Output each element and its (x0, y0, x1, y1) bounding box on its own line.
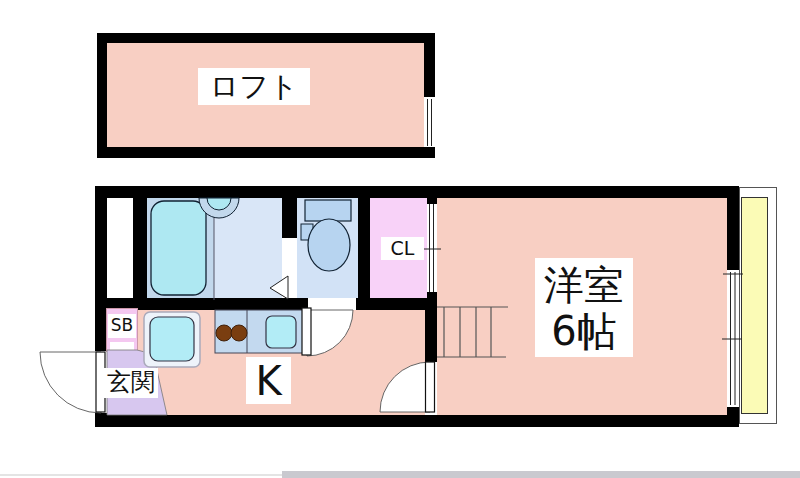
shoe-box-label: SB (108, 314, 136, 338)
interior-door-opening (425, 362, 437, 415)
western-room-label: 洋室 6帖 (535, 258, 633, 357)
room-toilet (297, 198, 358, 298)
wall-toilet-closet (358, 198, 370, 310)
wall-void-bathroom (133, 198, 147, 310)
main-wall-bottom (95, 415, 739, 427)
wall-washroom-toilet (282, 198, 297, 238)
main-window-opening (727, 270, 739, 407)
wall-closet-bottom (356, 298, 437, 310)
floor-plan: ロフト 洋室 6帖 CL K 玄関 SB (0, 0, 800, 478)
void-space (107, 198, 133, 300)
kitchen-label: K (246, 357, 291, 404)
wall-kitchen-westernroom (425, 310, 437, 362)
bottom-edge-bar (282, 471, 800, 478)
sliding-door-cap-top (427, 198, 437, 204)
closet-sliding-door-track (427, 198, 437, 298)
western-room-size: 6帖 (551, 308, 616, 354)
balcony (741, 197, 768, 414)
toilet-door-opening (308, 298, 356, 310)
bottom-edge-line (0, 474, 282, 476)
western-room-name: 洋室 (544, 262, 624, 308)
loft-label: ロフト (198, 68, 310, 105)
entrance-label: 玄関 (104, 368, 158, 398)
room-bathroom (147, 198, 214, 300)
entrance-door-swing (40, 352, 101, 413)
room-washroom (214, 198, 282, 300)
main-wall-top (95, 186, 739, 198)
loft-window-opening (424, 97, 435, 147)
closet-label: CL (381, 237, 424, 260)
shoe-box-shelf (110, 342, 134, 350)
washroom-door-opening (282, 238, 297, 300)
